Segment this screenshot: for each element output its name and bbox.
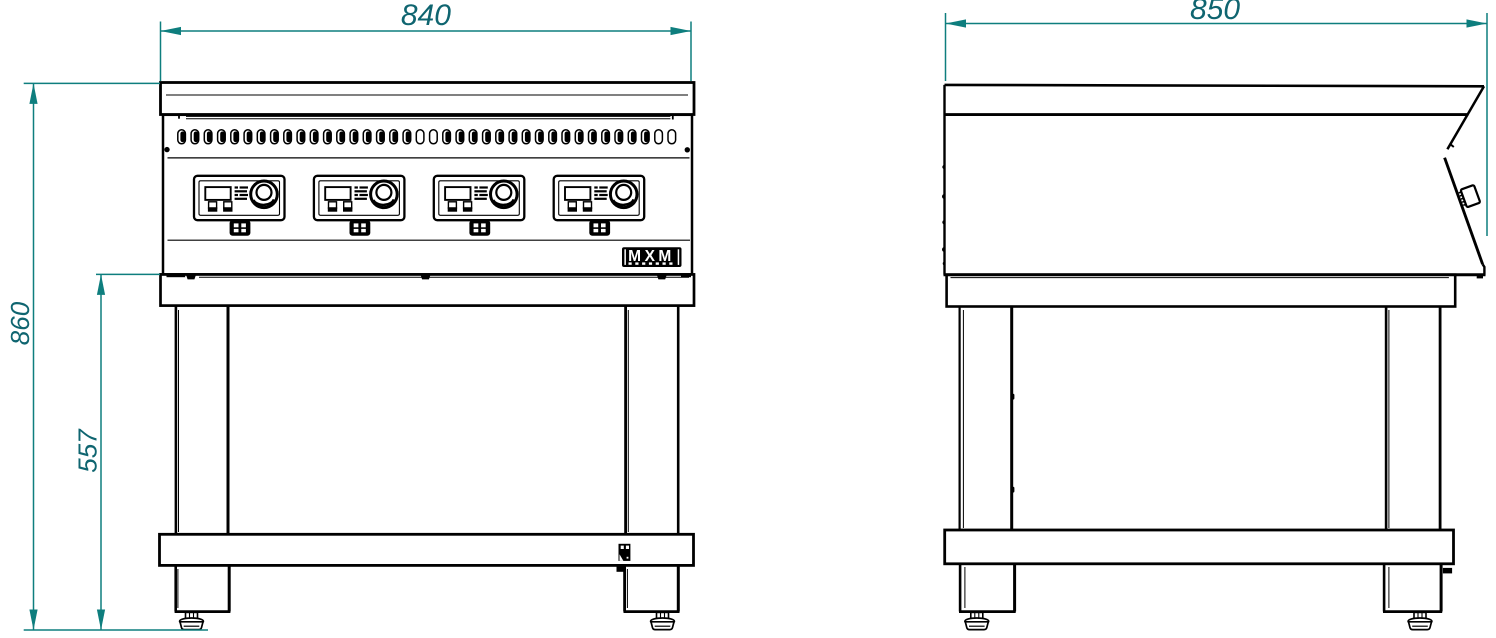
svg-text:557: 557 bbox=[73, 428, 103, 473]
svg-text:840: 840 bbox=[401, 0, 451, 32]
svg-text:860: 860 bbox=[5, 301, 35, 345]
svg-text:MXM: MXM bbox=[628, 248, 675, 265]
svg-text:850: 850 bbox=[1190, 0, 1240, 26]
